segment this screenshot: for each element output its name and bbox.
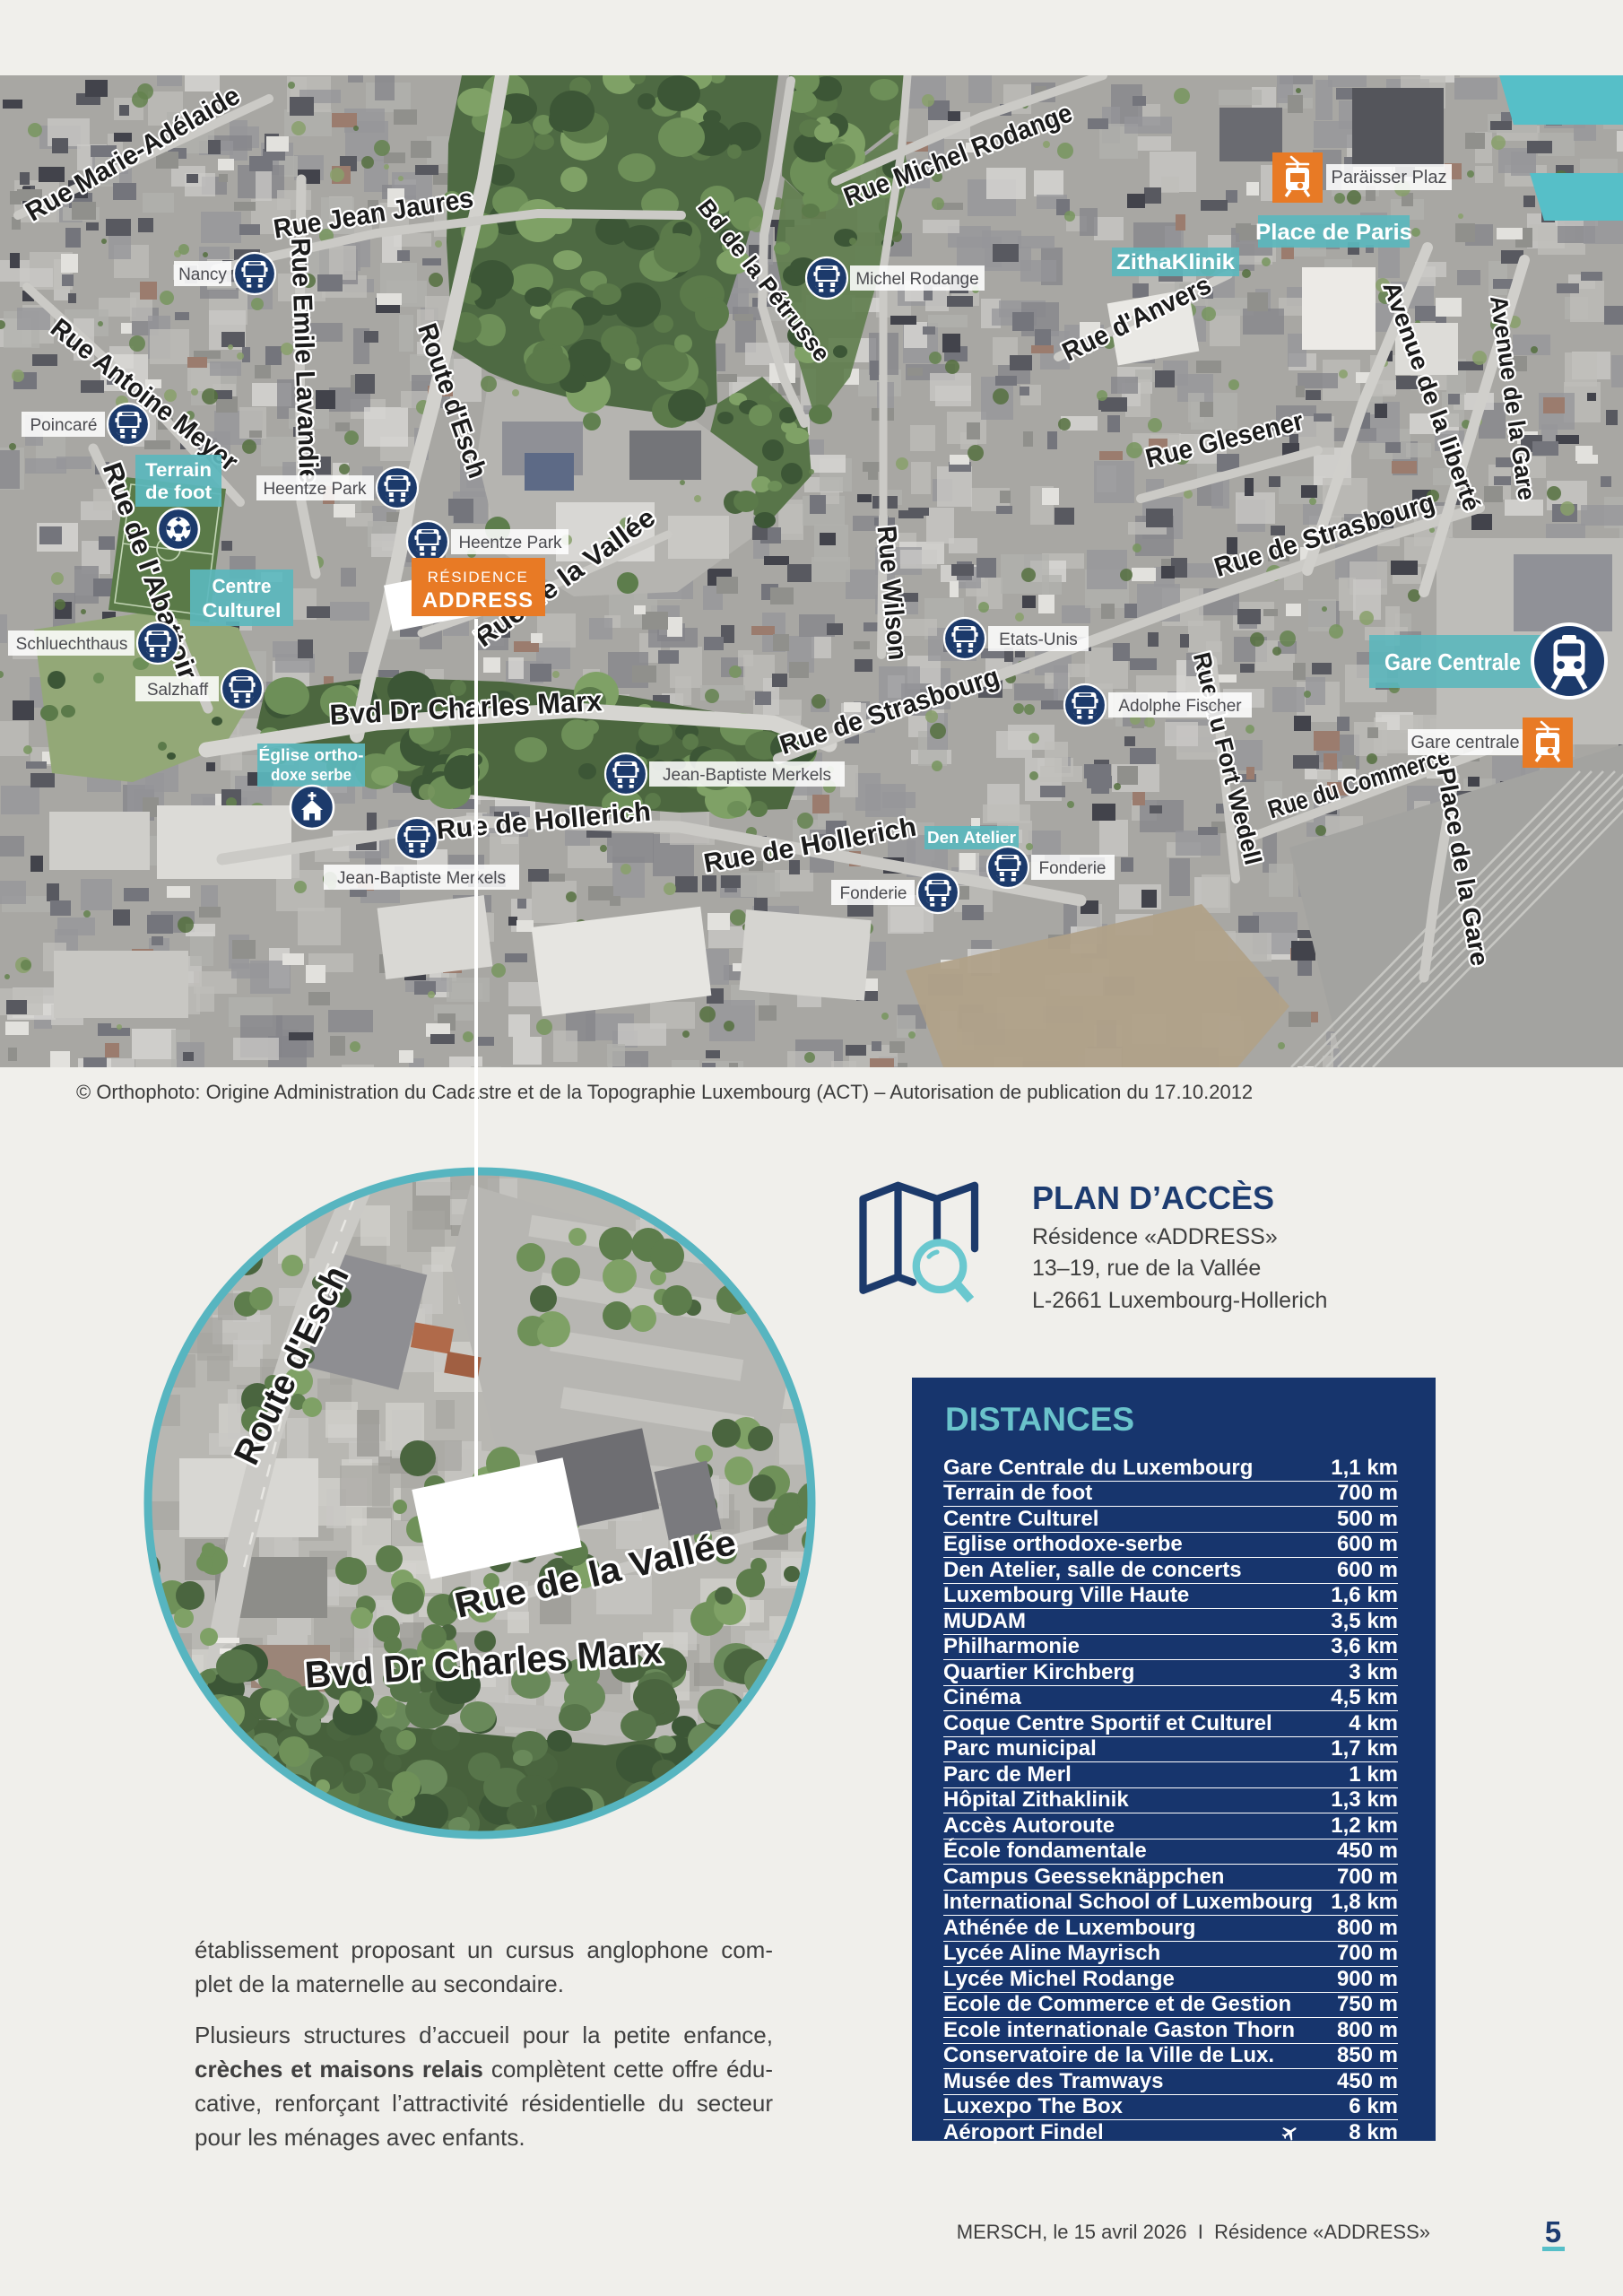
svg-text:Den Atelier: Den Atelier — [927, 829, 1016, 847]
svg-text:Gare centrale: Gare centrale — [1410, 733, 1519, 752]
svg-text:Schluechthaus: Schluechthaus — [16, 635, 128, 654]
svg-text:Etats-Unis: Etats-Unis — [999, 631, 1078, 649]
svg-text:Heentze Park: Heentze Park — [263, 480, 367, 499]
svg-text:Jean-Baptiste Merkels: Jean-Baptiste Merkels — [663, 766, 831, 785]
svg-text:Gare Centrale: Gare Centrale — [1384, 648, 1521, 675]
svg-text:Centre: Centre — [213, 575, 272, 597]
svg-text:Salzhaff: Salzhaff — [147, 681, 209, 700]
svg-text:Fonderie: Fonderie — [840, 884, 907, 903]
svg-text:Fonderie: Fonderie — [1039, 859, 1107, 878]
svg-text:ZithaKlinik: ZithaKlinik — [1116, 250, 1236, 274]
svg-text:Paräisser Plaz: Paräisser Plaz — [1332, 168, 1447, 187]
svg-text:Jean-Baptiste Merkels: Jean-Baptiste Merkels — [337, 869, 506, 888]
svg-text:Michel Rodange: Michel Rodange — [855, 270, 978, 289]
svg-text:de foot: de foot — [145, 483, 212, 503]
svg-text:ADDRESS: ADDRESS — [422, 588, 534, 613]
svg-text:Culturel: Culturel — [203, 599, 282, 622]
svg-text:RÉSIDENCE: RÉSIDENCE — [428, 569, 529, 586]
svg-text:Adolphe Fischer: Adolphe Fischer — [1118, 697, 1242, 716]
svg-text:doxe serbe: doxe serbe — [271, 766, 352, 784]
svg-text:Terrain: Terrain — [145, 460, 212, 481]
svg-text:Église ortho-: Église ortho- — [259, 745, 364, 764]
svg-text:Poincaré: Poincaré — [30, 416, 98, 435]
svg-text:Heentze Park: Heentze Park — [458, 534, 562, 552]
svg-text:Place de Paris: Place de Paris — [1255, 220, 1412, 245]
svg-text:Nancy: Nancy — [178, 265, 227, 284]
